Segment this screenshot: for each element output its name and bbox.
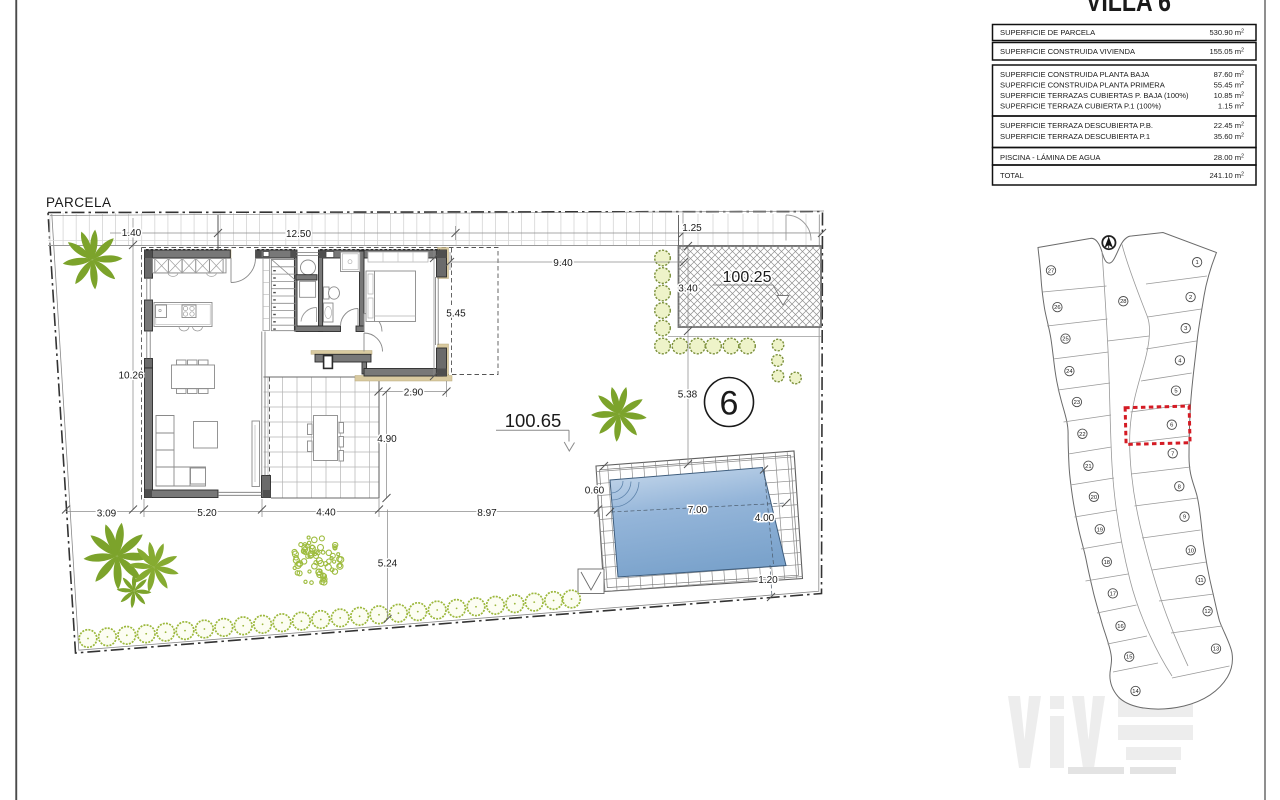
svg-text:19: 19 xyxy=(1097,527,1103,533)
svg-text:1.15 m2: 1.15 m2 xyxy=(1218,102,1244,111)
svg-text:100.25: 100.25 xyxy=(723,269,772,286)
svg-text:SUPERFICIE CONSTRUIDA PLANTA B: SUPERFICIE CONSTRUIDA PLANTA BAJA xyxy=(1000,70,1150,79)
svg-text:24: 24 xyxy=(1066,369,1073,375)
svg-text:10.26: 10.26 xyxy=(118,371,143,382)
svg-text:17: 17 xyxy=(1110,591,1116,597)
svg-text:28.00 m2: 28.00 m2 xyxy=(1214,153,1244,162)
svg-text:TOTAL: TOTAL xyxy=(1000,171,1024,180)
svg-text:SUPERFICIE TERRAZA DESCUBIERTA: SUPERFICIE TERRAZA DESCUBIERTA P.B. xyxy=(1000,121,1153,130)
svg-text:5.24: 5.24 xyxy=(378,559,398,570)
svg-text:13: 13 xyxy=(1213,647,1219,653)
svg-text:35.60 m2: 35.60 m2 xyxy=(1214,132,1244,141)
svg-text:SUPERFICIE TERRAZAS CUBIERTAS: SUPERFICIE TERRAZAS CUBIERTAS P. BAJA (1… xyxy=(1000,91,1189,100)
svg-text:5.20: 5.20 xyxy=(197,508,217,519)
svg-text:100.65: 100.65 xyxy=(505,410,562,431)
svg-text:241.10 m2: 241.10 m2 xyxy=(1209,171,1244,180)
svg-text:22: 22 xyxy=(1079,432,1085,438)
svg-text:3: 3 xyxy=(1184,326,1187,332)
svg-text:22.45 m2: 22.45 m2 xyxy=(1214,121,1244,130)
svg-text:16: 16 xyxy=(1117,624,1123,630)
svg-text:8: 8 xyxy=(1178,484,1181,490)
svg-text:2.90: 2.90 xyxy=(404,388,424,399)
svg-text:1: 1 xyxy=(1195,260,1198,266)
svg-text:1.40: 1.40 xyxy=(122,228,142,239)
svg-text:5: 5 xyxy=(1174,389,1177,395)
svg-text:7.00: 7.00 xyxy=(688,505,708,516)
svg-text:7: 7 xyxy=(1171,451,1174,457)
svg-text:27: 27 xyxy=(1048,268,1054,274)
svg-text:26: 26 xyxy=(1054,305,1060,311)
svg-text:155.05 m2: 155.05 m2 xyxy=(1209,47,1244,56)
svg-text:5.45: 5.45 xyxy=(446,309,466,320)
svg-text:6: 6 xyxy=(1170,423,1173,429)
svg-text:10: 10 xyxy=(1188,548,1194,554)
svg-text:18: 18 xyxy=(1104,560,1110,566)
svg-text:2: 2 xyxy=(1189,295,1192,301)
svg-text:1.20: 1.20 xyxy=(758,575,778,586)
svg-text:PARCELA: PARCELA xyxy=(46,195,112,210)
svg-text:15: 15 xyxy=(1126,655,1132,661)
svg-text:4.00: 4.00 xyxy=(755,513,775,524)
svg-text:87.60 m2: 87.60 m2 xyxy=(1214,70,1244,79)
svg-text:VILLA 6: VILLA 6 xyxy=(1086,0,1171,17)
svg-text:4.40: 4.40 xyxy=(316,508,336,519)
svg-text:3.40: 3.40 xyxy=(678,284,698,295)
svg-text:PISCINA - LÁMINA DE AGUA: PISCINA - LÁMINA DE AGUA xyxy=(1000,153,1101,162)
svg-text:10.85 m2: 10.85 m2 xyxy=(1214,91,1244,100)
svg-text:23: 23 xyxy=(1074,400,1080,406)
svg-text:21: 21 xyxy=(1085,464,1091,470)
svg-text:11: 11 xyxy=(1198,578,1204,584)
svg-text:3.09: 3.09 xyxy=(97,509,117,520)
svg-text:12.50: 12.50 xyxy=(286,229,311,240)
svg-text:SUPERFICIE DE PARCELA: SUPERFICIE DE PARCELA xyxy=(1000,28,1096,37)
svg-text:0.60: 0.60 xyxy=(585,486,605,497)
svg-text:SUPERFICIE CONSTRUIDA PLANTA P: SUPERFICIE CONSTRUIDA PLANTA PRIMERA xyxy=(1000,81,1166,90)
svg-text:SUPERFICIE TERRAZA DESCUBIERTA: SUPERFICIE TERRAZA DESCUBIERTA P.1 xyxy=(1000,132,1150,141)
svg-text:12: 12 xyxy=(1204,609,1210,615)
svg-text:9: 9 xyxy=(1183,515,1186,521)
svg-text:4.90: 4.90 xyxy=(377,434,397,445)
svg-text:530.90 m2: 530.90 m2 xyxy=(1209,28,1244,37)
svg-text:9.40: 9.40 xyxy=(553,258,573,269)
svg-text:14: 14 xyxy=(1132,689,1139,695)
svg-text:5.38: 5.38 xyxy=(678,390,698,401)
svg-text:20: 20 xyxy=(1091,495,1097,501)
svg-text:25: 25 xyxy=(1062,337,1068,343)
svg-text:1.25: 1.25 xyxy=(682,223,702,234)
svg-text:8.97: 8.97 xyxy=(477,508,497,519)
svg-text:28: 28 xyxy=(1120,299,1126,305)
svg-text:55.45 m2: 55.45 m2 xyxy=(1214,81,1244,90)
svg-text:SUPERFICIE CONSTRUIDA VIVIENDA: SUPERFICIE CONSTRUIDA VIVIENDA xyxy=(1000,47,1136,56)
svg-text:SUPERFICIE TERRAZA CUBIERTA P.: SUPERFICIE TERRAZA CUBIERTA P.1 (100%) xyxy=(1000,102,1162,111)
svg-text:6: 6 xyxy=(720,385,739,423)
